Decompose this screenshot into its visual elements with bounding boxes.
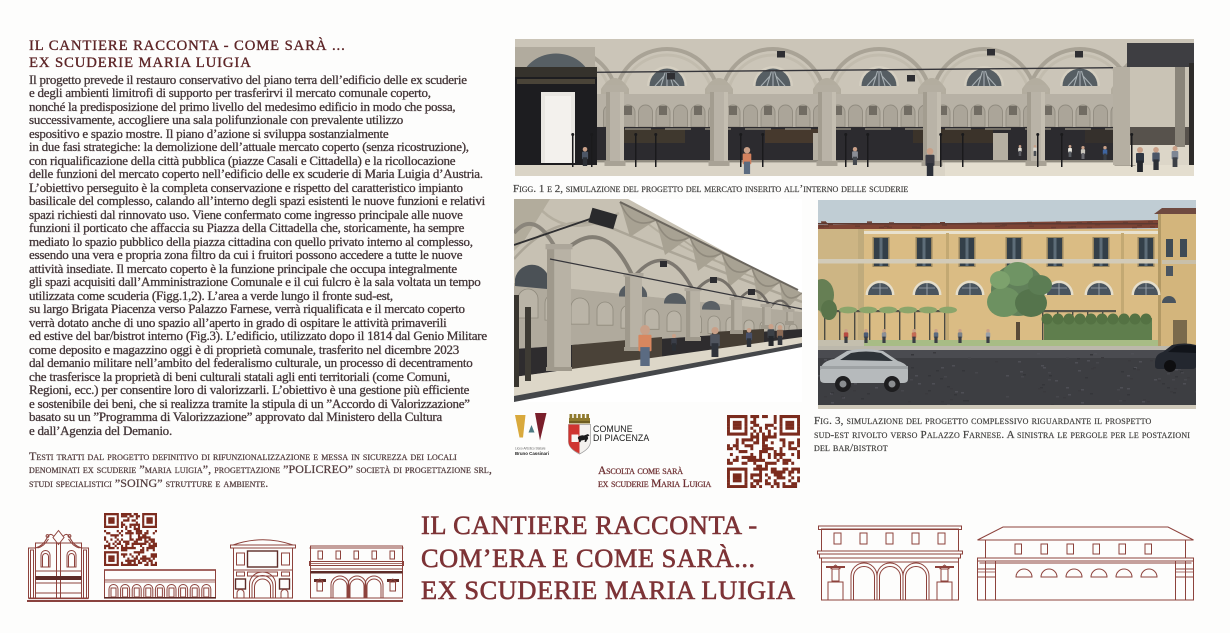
svg-text:Liceo Artistico Statale: Liceo Artistico Statale — [515, 447, 546, 451]
svg-text:Bruno Cassinari: Bruno Cassinari — [515, 451, 549, 456]
